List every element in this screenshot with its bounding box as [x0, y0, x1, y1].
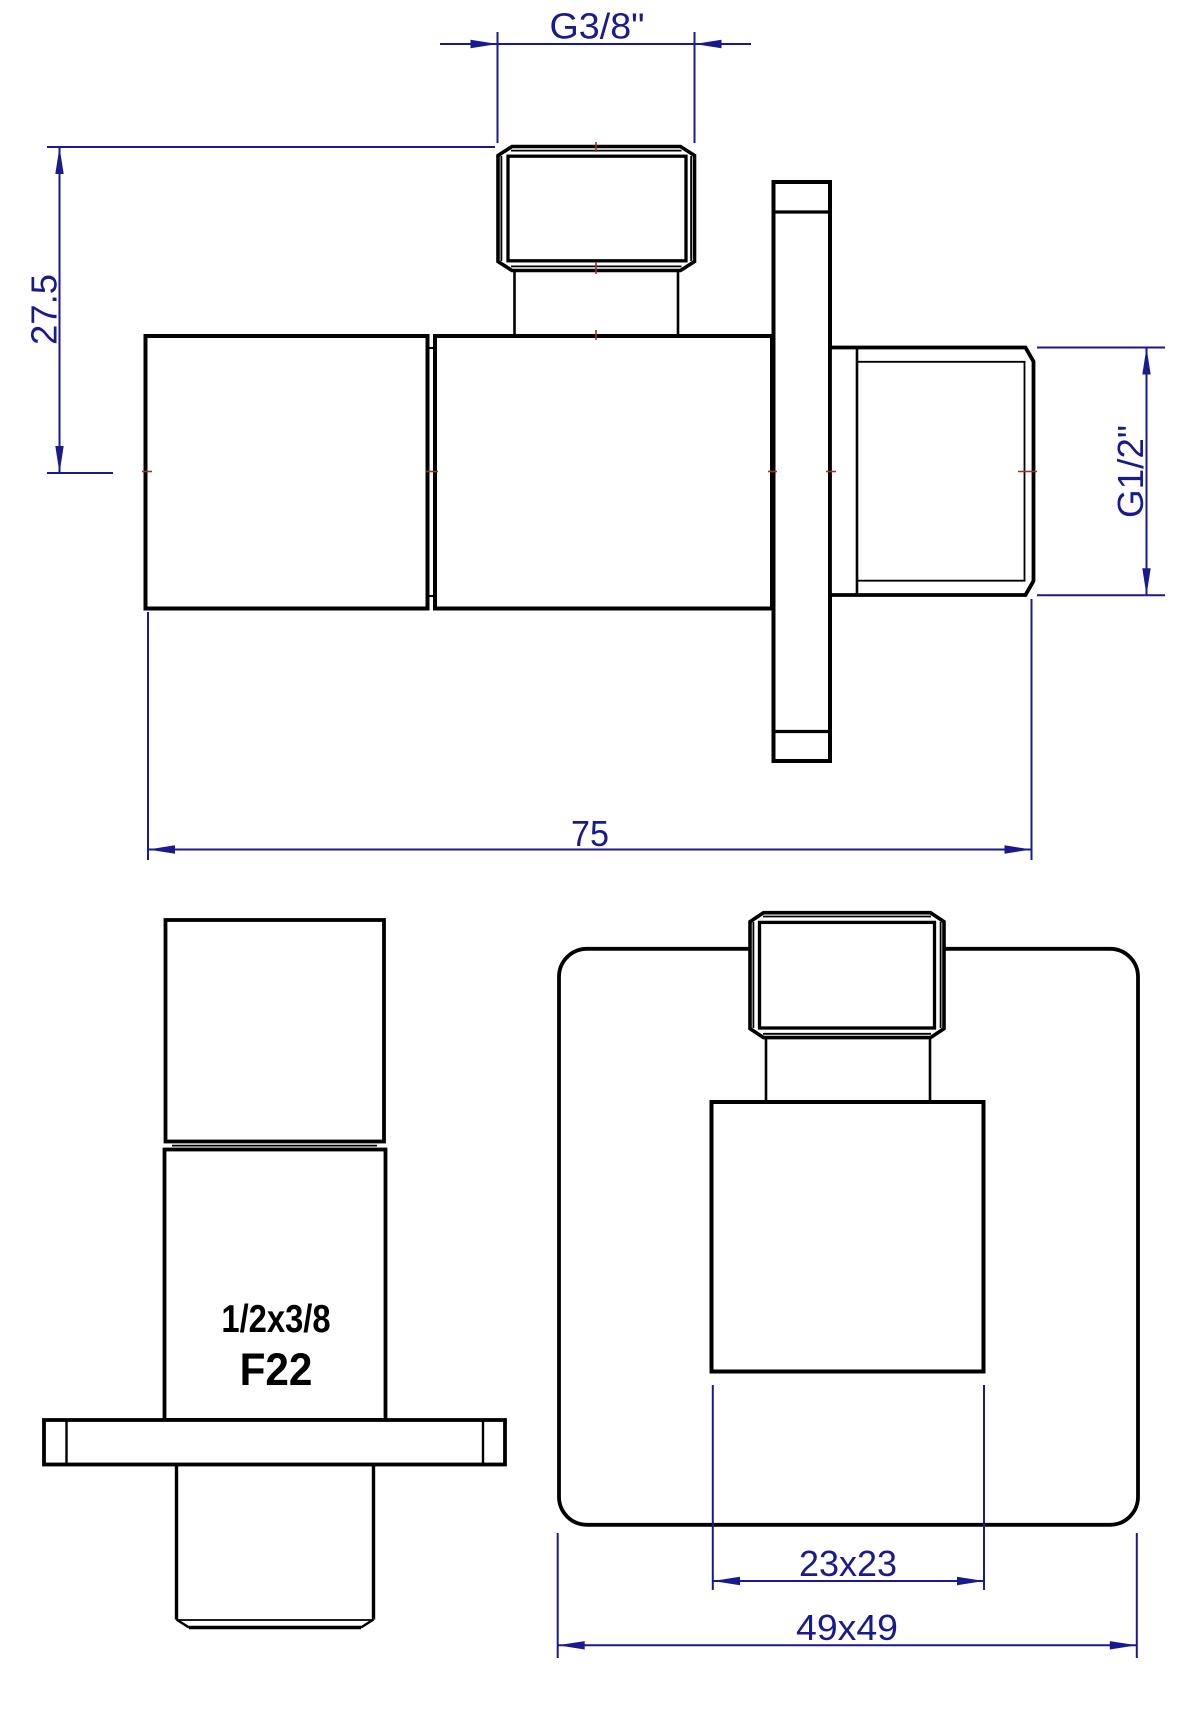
svg-text:27.5: 27.5 [24, 274, 65, 345]
svg-text:G1/2": G1/2" [1110, 425, 1151, 518]
svg-text:G3/8": G3/8" [550, 6, 645, 47]
svg-text:F22: F22 [240, 1345, 313, 1395]
svg-text:75: 75 [571, 813, 609, 854]
svg-text:49x49: 49x49 [796, 1607, 898, 1648]
svg-text:1/2x3/8: 1/2x3/8 [221, 1296, 330, 1340]
svg-text:23x23: 23x23 [799, 1543, 897, 1584]
